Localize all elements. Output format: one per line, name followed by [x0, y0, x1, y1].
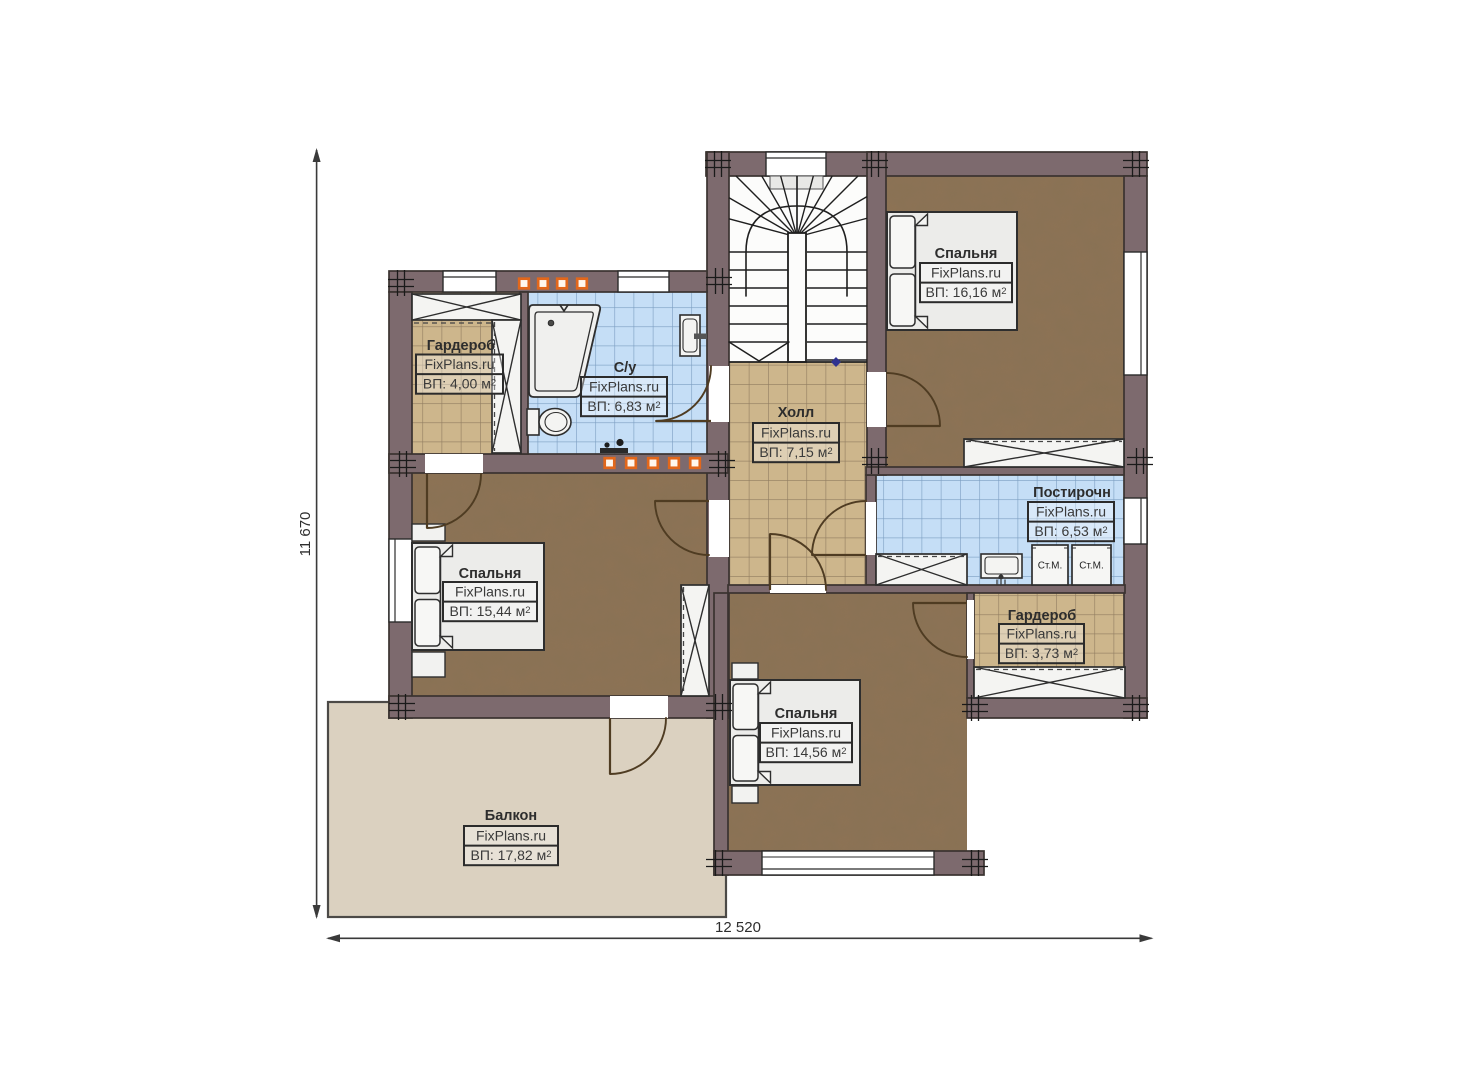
- svg-text:FixPlans.ru: FixPlans.ru: [424, 356, 494, 372]
- svg-text:ВП: 7,15 м2: ВП: 7,15 м2: [759, 444, 832, 460]
- svg-text:Ст.М.: Ст.М.: [1038, 561, 1063, 572]
- svg-text:Постирочн: Постирочн: [1033, 485, 1111, 501]
- svg-text:ВП: 14,56 м2: ВП: 14,56 м2: [765, 744, 846, 760]
- svg-text:С/у: С/у: [614, 360, 637, 376]
- svg-text:FixPlans.ru: FixPlans.ru: [931, 264, 1001, 280]
- svg-text:ВП: 3,73 м2: ВП: 3,73 м2: [1005, 645, 1078, 661]
- svg-text:12 520: 12 520: [715, 919, 761, 936]
- svg-text:FixPlans.ru: FixPlans.ru: [455, 583, 525, 599]
- svg-text:FixPlans.ru: FixPlans.ru: [1036, 503, 1106, 519]
- svg-text:ВП: 6,53 м2: ВП: 6,53 м2: [1034, 523, 1107, 539]
- svg-text:Гардероб: Гардероб: [427, 338, 496, 354]
- svg-text:Гардероб: Гардероб: [1008, 608, 1077, 624]
- svg-text:Спальня: Спальня: [775, 706, 838, 722]
- svg-text:ВП: 6,83 м2: ВП: 6,83 м2: [587, 398, 660, 414]
- svg-text:Балкон: Балкон: [485, 808, 537, 824]
- svg-text:Спальня: Спальня: [935, 246, 998, 262]
- svg-text:Спальня: Спальня: [459, 566, 522, 582]
- svg-text:Ст.М.: Ст.М.: [1079, 561, 1104, 572]
- svg-text:ВП: 16,16 м2: ВП: 16,16 м2: [925, 284, 1006, 300]
- svg-text:ВП: 15,44 м2: ВП: 15,44 м2: [449, 603, 530, 619]
- svg-text:FixPlans.ru: FixPlans.ru: [1006, 625, 1076, 641]
- svg-text:FixPlans.ru: FixPlans.ru: [761, 424, 831, 440]
- svg-text:FixPlans.ru: FixPlans.ru: [476, 827, 546, 843]
- svg-text:ВП: 17,82 м2: ВП: 17,82 м2: [470, 847, 551, 863]
- svg-text:ВП: 4,00 м2: ВП: 4,00 м2: [423, 376, 496, 392]
- svg-text:11 670: 11 670: [297, 512, 314, 557]
- svg-text:FixPlans.ru: FixPlans.ru: [771, 724, 841, 740]
- svg-text:FixPlans.ru: FixPlans.ru: [589, 378, 659, 394]
- svg-text:Холл: Холл: [778, 405, 814, 421]
